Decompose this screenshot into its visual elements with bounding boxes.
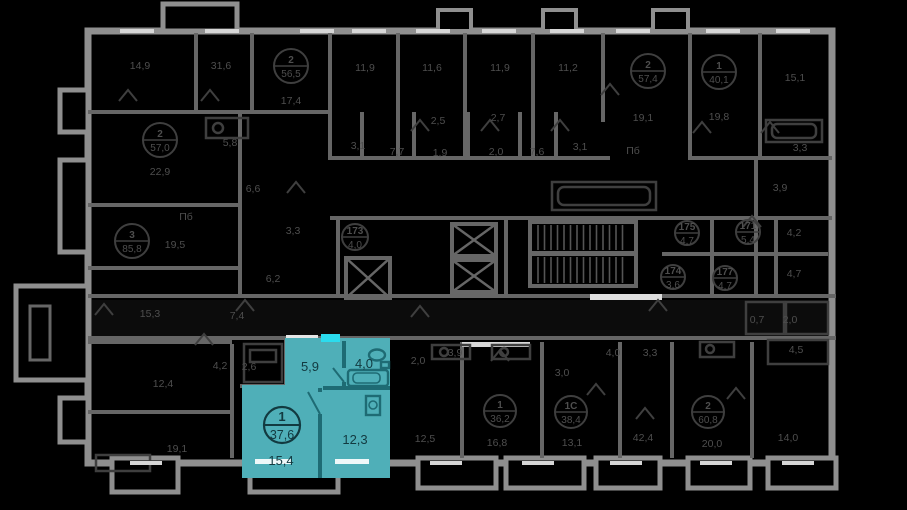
svg-text:57,4: 57,4 <box>638 74 658 85</box>
svg-text:85,8: 85,8 <box>122 244 142 255</box>
svg-text:174: 174 <box>665 266 682 277</box>
dim-room-label: 2,7 <box>491 112 506 124</box>
badge-rooms-count: 1 <box>278 409 285 424</box>
dim-room-label: 20,0 <box>702 438 723 450</box>
unit-badge[interactable]: 257,0 <box>143 123 177 157</box>
dim-room-label: Пб <box>626 145 640 157</box>
dim-room-label: 11,9 <box>490 62 510 74</box>
svg-text:3: 3 <box>129 230 135 241</box>
svg-text:1: 1 <box>497 400 503 411</box>
dim-room-label: 3,3 <box>793 142 808 154</box>
dim-room-label: 16,8 <box>487 437 508 449</box>
window-slit <box>522 461 554 465</box>
room-area-label: 5,9 <box>301 359 319 374</box>
dim-room-label: 3,9 <box>773 182 788 194</box>
svg-text:2: 2 <box>645 60 651 71</box>
dim-room-label: 13,1 <box>562 437 583 449</box>
unit-badge[interactable]: 256,5 <box>274 49 308 83</box>
bay-window <box>438 10 471 31</box>
bay-window <box>60 398 88 442</box>
dim-room-label: 12,4 <box>153 378 174 390</box>
dim-room-label: 7,4 <box>230 310 245 322</box>
window-slit <box>352 29 386 33</box>
dim-room-label: 0,7 <box>750 314 765 326</box>
window-slit <box>416 29 450 33</box>
svg-text:177: 177 <box>717 267 734 278</box>
wall-highlight <box>590 294 662 300</box>
window-slit <box>335 459 369 464</box>
room-area-label: 12,3 <box>342 432 367 447</box>
window-slit <box>616 29 650 33</box>
unit-badge[interactable]: 1С38,4 <box>555 396 587 428</box>
svg-text:40,1: 40,1 <box>709 75 729 86</box>
dim-room-label: 19,1 <box>633 112 654 124</box>
svg-text:4,7: 4,7 <box>680 236 694 247</box>
dim-room-label: 14,9 <box>130 60 151 72</box>
window-slit <box>610 461 642 465</box>
bay-window <box>60 90 88 132</box>
svg-text:36,2: 36,2 <box>490 414 510 425</box>
bay-window <box>543 10 576 31</box>
room-area-label: 4,0 <box>355 356 373 371</box>
dim-room-label: 19,5 <box>165 239 186 251</box>
dim-room-label: 6,6 <box>246 183 261 195</box>
dim-room-label: 42,4 <box>633 432 654 444</box>
svg-text:38,4: 38,4 <box>561 415 581 426</box>
bay-window <box>163 4 237 31</box>
unit-badge[interactable]: 260,8 <box>692 396 724 428</box>
dim-room-label: 4,7 <box>787 268 802 280</box>
window-slit <box>130 461 162 465</box>
bay-window <box>653 10 688 31</box>
dim-room-label: 7,7 <box>390 146 405 158</box>
dim-room-label: 19,1 <box>167 443 188 455</box>
dim-room-label: 2,5 <box>431 115 446 127</box>
svg-text:5,4: 5,4 <box>741 235 755 246</box>
dim-room-label: 4,2 <box>787 227 802 239</box>
dim-room-label: 3,3 <box>643 347 658 359</box>
window-slit <box>430 461 462 465</box>
window-slit <box>700 461 732 465</box>
dim-room-label: 3,1 <box>351 140 366 152</box>
window-slit <box>782 461 814 465</box>
svg-text:2: 2 <box>157 129 163 140</box>
svg-text:3,6: 3,6 <box>666 280 680 291</box>
dim-room-label: 31,6 <box>211 60 232 72</box>
dim-room-label: 3,0 <box>555 367 570 379</box>
window-slit <box>706 29 740 33</box>
dim-room-label: 4,2 <box>213 360 228 372</box>
svg-text:60,8: 60,8 <box>698 415 718 426</box>
unit-badge[interactable]: 385,8 <box>115 224 149 258</box>
svg-text:171: 171 <box>740 221 757 232</box>
window-slit <box>550 29 584 33</box>
dim-room-label: 4,5 <box>789 344 804 356</box>
dim-room-label: 14,0 <box>778 432 799 444</box>
svg-text:2: 2 <box>705 401 711 412</box>
dim-room-label: 11,9 <box>355 62 375 74</box>
svg-text:173: 173 <box>347 226 364 237</box>
svg-text:1С: 1С <box>565 401 578 412</box>
svg-text:4,7: 4,7 <box>718 281 732 292</box>
bay-window <box>60 160 88 252</box>
apartment-badge[interactable]: 1 37,6 <box>264 407 300 443</box>
dim-room-label: 1,9 <box>433 147 448 159</box>
svg-text:175: 175 <box>679 222 696 233</box>
dim-room-label: 22,9 <box>150 166 171 178</box>
window-slit <box>205 29 239 33</box>
window-slit <box>482 29 516 33</box>
dim-room-label: 3,3 <box>286 225 301 237</box>
dim-room-label: 15,3 <box>140 308 161 320</box>
dim-room-label: 2,0 <box>411 355 426 367</box>
dim-room-label: 3,1 <box>573 141 588 153</box>
dim-room-label: 2,6 <box>242 361 257 373</box>
floor-plan: 14,931,617,411,911,611,911,219,119,815,1… <box>0 0 907 510</box>
dim-room-label: 11,6 <box>422 62 442 74</box>
window-slit <box>300 29 334 33</box>
dim-room-label: 12,5 <box>415 433 436 445</box>
svg-text:2: 2 <box>288 55 294 66</box>
unit-badge[interactable]: 257,4 <box>631 54 665 88</box>
window-slit <box>120 29 154 33</box>
dim-room-label: 19,8 <box>709 111 730 123</box>
window-slit <box>776 29 810 33</box>
dim-room-label: 4,0 <box>606 347 621 359</box>
unit-badge[interactable]: 1734,0 <box>342 224 368 251</box>
floor-plan-viewer: 14,931,617,411,911,611,911,219,119,815,1… <box>0 0 907 510</box>
bay-window <box>16 286 88 380</box>
dim-room-label: 7,6 <box>530 146 545 158</box>
dim-room-label: 17,4 <box>281 95 302 107</box>
dim-room-label: 6,2 <box>266 273 281 285</box>
dim-room-label: 3,9 <box>448 347 463 359</box>
corridor-floor <box>92 300 832 336</box>
dim-room-label: 15,1 <box>785 72 806 84</box>
svg-text:57,0: 57,0 <box>150 143 170 154</box>
svg-text:4,0: 4,0 <box>348 240 362 251</box>
entrance-door-marker[interactable] <box>321 334 340 342</box>
unit-badge[interactable]: 140,1 <box>702 55 736 89</box>
svg-text:1: 1 <box>716 61 722 72</box>
dim-room-label: Пб <box>179 211 193 223</box>
unit-badge[interactable]: 136,2 <box>484 395 516 427</box>
svg-text:56,5: 56,5 <box>281 69 301 80</box>
room-area-label: 15,4 <box>268 453 293 468</box>
dim-room-label: 2,0 <box>489 146 504 158</box>
dim-room-label: 11,2 <box>558 62 578 74</box>
dim-room-label: 5,8 <box>223 137 238 149</box>
badge-total-area: 37,6 <box>270 428 294 442</box>
dim-room-label: 2,0 <box>783 314 798 326</box>
